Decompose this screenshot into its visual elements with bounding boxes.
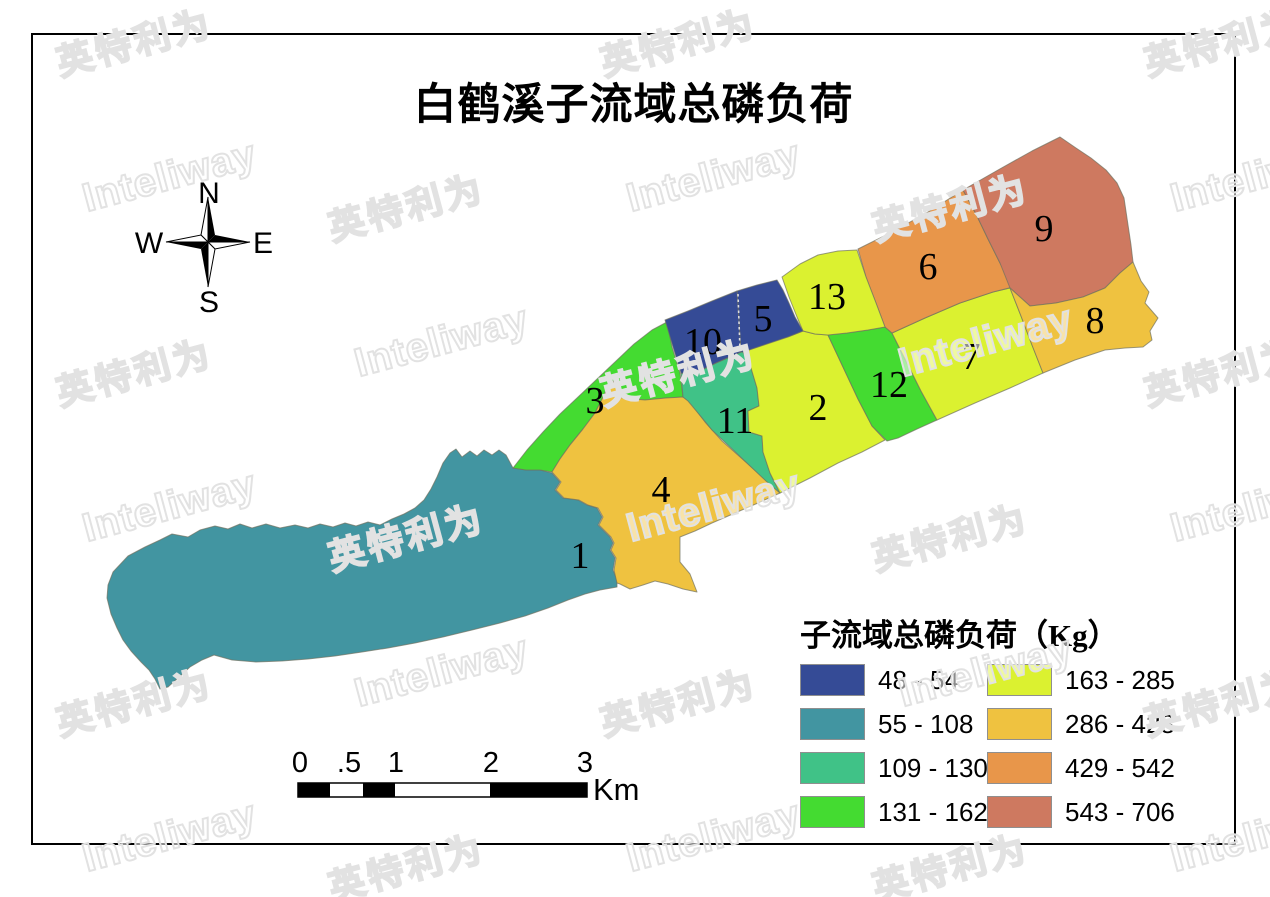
region-polygon-1	[107, 449, 617, 689]
legend-item: 429 - 542	[987, 752, 1175, 784]
scale-bar-tick-label: 2	[483, 747, 499, 779]
legend-item: 55 - 108	[800, 708, 988, 740]
legend-color-swatch	[800, 796, 865, 828]
legend-range-label: 48 - 54	[878, 665, 959, 696]
scale-bar-tick-label: 1	[388, 747, 404, 779]
region-label-8: 8	[1086, 300, 1105, 342]
scale-bar-unit-label: Km	[593, 772, 640, 807]
legend-color-swatch	[800, 664, 865, 696]
compass-rose: N E S W	[135, 177, 273, 319]
compass-south-label: S	[199, 286, 219, 319]
scale-bar-segment	[395, 783, 490, 797]
legend-color-swatch	[987, 796, 1052, 828]
legend-range-label: 131 - 162	[878, 797, 988, 828]
legend-title: 子流域总磷负荷（Kg）	[800, 610, 1119, 655]
legend-range-label: 163 - 285	[1065, 665, 1175, 696]
region-label-12: 12	[870, 364, 908, 406]
compass-star-light-blade	[208, 242, 215, 287]
compass-north-label: N	[198, 177, 220, 210]
legend-column-1: 48 - 5455 - 108109 - 130131 - 162	[800, 664, 988, 828]
scale-bar-segment	[490, 783, 587, 797]
region-label-11: 11	[717, 400, 754, 442]
legend-color-swatch	[987, 708, 1052, 740]
legend-color-swatch	[800, 708, 865, 740]
legend-range-label: 543 - 706	[1065, 797, 1175, 828]
legend-item: 48 - 54	[800, 664, 988, 696]
legend-item: 286 - 428	[987, 708, 1175, 740]
region-label-1: 1	[571, 535, 590, 577]
compass-west-label: W	[135, 227, 164, 260]
legend-column-2: 163 - 285286 - 428429 - 542543 - 706	[987, 664, 1175, 828]
legend-range-label: 286 - 428	[1065, 709, 1175, 740]
scale-bar: 0.5123Km	[292, 747, 640, 807]
region-label-7: 7	[962, 336, 981, 378]
legend-item: 543 - 706	[987, 796, 1175, 828]
watershed-regions	[107, 137, 1158, 689]
region-label-9: 9	[1035, 208, 1054, 250]
region-label-13: 13	[808, 276, 846, 318]
legend-item: 109 - 130	[800, 752, 988, 784]
region-label-6: 6	[919, 246, 938, 288]
page-title: 白鹤溪子流域总磷负荷	[31, 70, 1236, 132]
legend-color-swatch	[987, 752, 1052, 784]
region-label-2: 2	[809, 387, 828, 429]
compass-star-dark-blade	[201, 242, 208, 287]
legend-item: 163 - 285	[987, 664, 1175, 696]
legend-range-label: 55 - 108	[878, 709, 973, 740]
scale-bar-tick-label: 3	[577, 747, 593, 779]
compass-star-dark-blade	[166, 242, 208, 249]
scale-bar-tick-label: .5	[337, 747, 361, 779]
legend-range-label: 109 - 130	[878, 753, 988, 784]
scale-bar-tick-label: 0	[292, 747, 308, 779]
compass-star-icon	[166, 197, 250, 287]
legend-range-label: 429 - 542	[1065, 753, 1175, 784]
region-label-5: 5	[754, 298, 773, 340]
region-label-3: 3	[586, 380, 605, 422]
map-document: 白鹤溪子流域总磷负荷 13411212761351098 N E S W 0.5…	[0, 0, 1270, 897]
compass-east-label: E	[253, 227, 273, 260]
compass-star-dark-blade	[208, 235, 250, 242]
legend-color-swatch	[800, 752, 865, 784]
scale-bar-segment	[330, 783, 363, 797]
compass-star-light-blade	[166, 235, 208, 242]
scale-bar-segment	[363, 783, 395, 797]
region-label-4: 4	[652, 469, 671, 511]
scale-bar-segment	[298, 783, 330, 797]
legend-item: 131 - 162	[800, 796, 988, 828]
region-label-10: 10	[684, 321, 722, 363]
legend-color-swatch	[987, 664, 1052, 696]
